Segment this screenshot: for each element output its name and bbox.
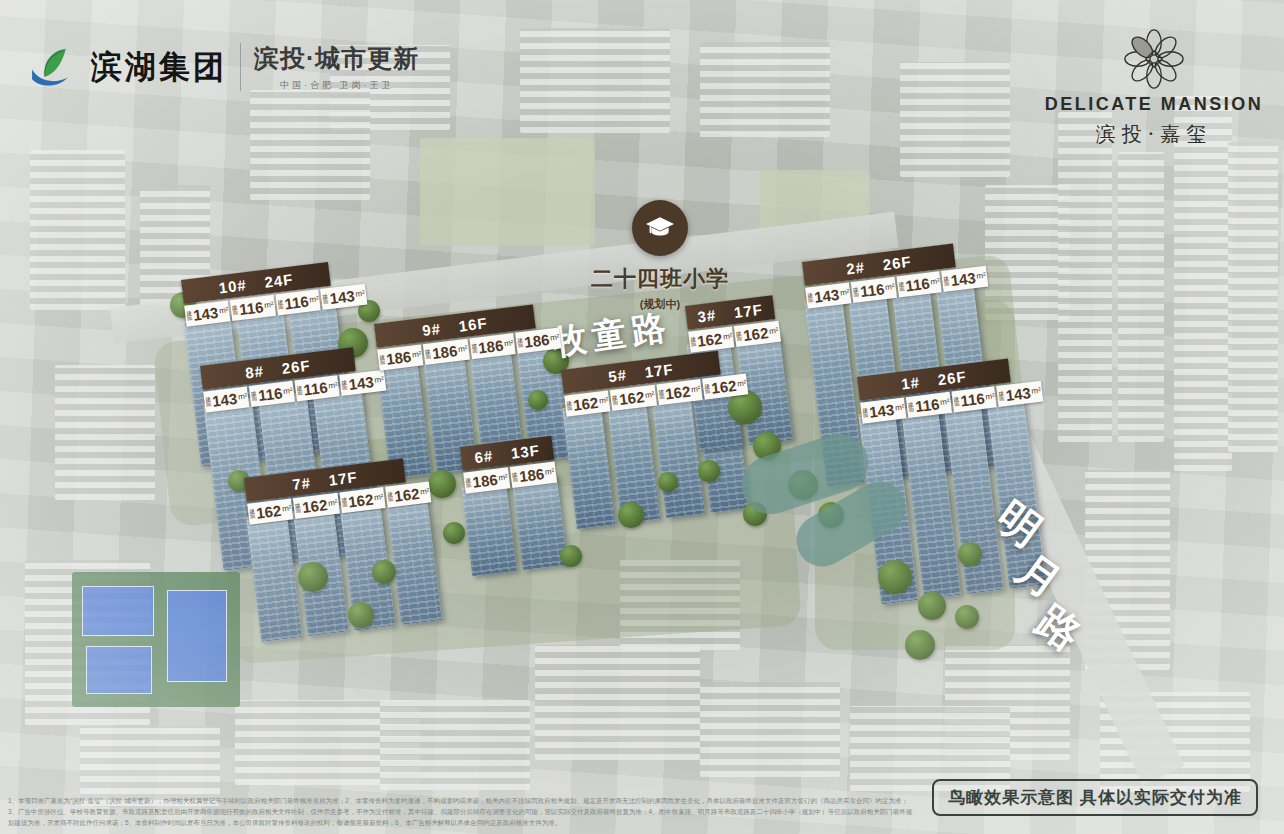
area-unit: m²	[691, 384, 701, 394]
area-value: 162	[618, 389, 645, 407]
brand-divider	[240, 43, 241, 91]
area-value: 143	[1005, 385, 1032, 403]
area-unit: m²	[219, 305, 229, 315]
building-floors: 26F	[281, 357, 312, 377]
area-unit: m²	[599, 395, 609, 405]
bg-tree	[443, 522, 465, 544]
bg-tree	[428, 470, 456, 498]
bg-pale	[700, 682, 840, 777]
building-floors: 26F	[882, 253, 913, 273]
project-name-en: DELICATE MANSION	[1045, 94, 1264, 115]
building-number: 2#	[845, 258, 866, 277]
area-unit: m²	[309, 294, 319, 304]
bg-pale	[55, 365, 155, 500]
building-floors: 17F	[733, 301, 764, 321]
area-prefix: 建面	[205, 397, 211, 407]
area-prefix: 建面	[853, 287, 859, 297]
tower-block	[386, 495, 442, 625]
area-value: 116	[257, 385, 283, 403]
area-prefix: 建面	[232, 305, 238, 315]
area-prefix: 建面	[387, 492, 393, 502]
area-unit: m²	[723, 331, 733, 341]
area-unit: m²	[412, 349, 422, 359]
bg-pale	[520, 28, 670, 133]
area-unit: m²	[355, 289, 365, 299]
bg-tree	[618, 502, 644, 528]
area-value: 162	[348, 491, 375, 509]
graduation-cap-badge	[632, 200, 688, 256]
area-prefix: 建面	[953, 397, 959, 407]
area-unit: m²	[458, 344, 468, 354]
area-value: 162	[572, 395, 599, 413]
area-unit: m²	[985, 391, 995, 401]
building-floors: 13F	[510, 441, 541, 461]
building-floors: 17F	[328, 468, 359, 488]
bg-court	[167, 590, 227, 682]
area-prefix: 建面	[517, 338, 523, 348]
area-prefix: 建面	[249, 509, 255, 519]
binhu-group-leaf-icon	[26, 44, 78, 90]
school-marker: 二十四班小学 (规划中)	[575, 200, 745, 312]
area-prefix: 建面	[999, 391, 1005, 401]
area-unit: m²	[374, 375, 384, 385]
area-prefix: 建面	[736, 331, 742, 341]
legal-disclaimer: 1、本项目推广案名为“滨投·嘉玺”（滨投·城市更新），办理相关权属登记等手续时以…	[8, 795, 913, 828]
area-value: 143	[329, 288, 356, 306]
area-value: 186	[385, 349, 412, 367]
area-prefix: 建面	[277, 300, 283, 310]
building-number: 10#	[218, 276, 248, 296]
building-number: 9#	[421, 320, 442, 339]
bg-tree	[348, 602, 374, 628]
area-prefix: 建面	[944, 276, 950, 286]
area-value: 116	[284, 294, 310, 312]
brand-bar-left: 滨湖集团 滨投·城市更新 中国·合肥 卫岗·王卫	[26, 42, 419, 92]
area-value: 162	[255, 503, 282, 521]
area-unit: m²	[504, 338, 514, 348]
bg-tree	[905, 630, 935, 660]
area-value: 143	[211, 391, 238, 409]
area-value: 143	[868, 402, 895, 420]
area-prefix: 建面	[466, 478, 472, 488]
area-unit: m²	[374, 492, 384, 502]
area-unit: m²	[737, 379, 747, 389]
area-unit: m²	[238, 391, 248, 401]
area-unit: m²	[545, 467, 555, 477]
area-value: 116	[914, 396, 940, 414]
bg-tree	[658, 472, 678, 492]
building-floors: 16F	[458, 314, 489, 334]
area-value: 143	[192, 305, 219, 323]
render-note-box: 鸟瞰效果示意图 具体以实际交付为准	[932, 779, 1258, 816]
area-prefix: 建面	[425, 349, 431, 359]
area-value: 186	[524, 332, 551, 350]
area-unit: m²	[930, 276, 940, 286]
area-prefix: 建面	[251, 391, 257, 401]
bg-tree	[298, 562, 328, 592]
area-unit: m²	[885, 282, 895, 292]
area-unit: m²	[895, 402, 905, 412]
bg-tree	[528, 390, 548, 410]
bg-tree	[958, 542, 982, 566]
area-prefix: 建面	[295, 503, 301, 513]
building-number: 5#	[607, 366, 628, 385]
project-name-cn: 滨投·嘉玺	[1096, 121, 1212, 148]
area-value: 186	[478, 337, 505, 355]
area-value: 186	[518, 466, 545, 484]
area-prefix: 建面	[186, 311, 192, 321]
graduation-cap-icon	[644, 212, 676, 244]
area-unit: m²	[498, 472, 508, 482]
area-prefix: 建面	[341, 498, 347, 508]
building-number: 3#	[697, 306, 718, 325]
area-prefix: 建面	[807, 293, 813, 303]
bg-tree	[698, 460, 720, 482]
area-value: 186	[472, 472, 499, 490]
brand-tagline: 中国·合肥 卫岗·王卫	[280, 79, 394, 92]
area-prefix: 建面	[342, 380, 348, 390]
area-value: 116	[960, 391, 986, 409]
area-value: 162	[665, 383, 692, 401]
area-value: 116	[238, 299, 264, 317]
unit-area-tag: 建面143m²	[997, 381, 1044, 407]
area-prefix: 建面	[566, 401, 572, 411]
bg-pale	[380, 700, 530, 790]
area-prefix: 建面	[862, 408, 868, 418]
area-prefix: 建面	[323, 294, 329, 304]
area-unit: m²	[976, 271, 986, 281]
area-unit: m²	[550, 333, 560, 343]
area-unit: m²	[283, 386, 293, 396]
area-value: 143	[348, 374, 375, 392]
bg-tree	[918, 592, 946, 620]
bg-tree	[955, 605, 979, 629]
bg-pale	[1058, 112, 1112, 442]
bg-pale	[1174, 96, 1232, 471]
area-value: 162	[711, 378, 738, 396]
area-value: 162	[394, 486, 421, 504]
area-prefix: 建面	[612, 395, 618, 405]
bg-courts	[72, 572, 240, 707]
area-value: 162	[301, 497, 328, 515]
bg-court	[86, 646, 152, 694]
sub-brand-name: 滨投·城市更新	[254, 42, 419, 75]
brand-bar-right: DELICATE MANSION 滨投·嘉玺	[1064, 28, 1244, 148]
bg-pale	[700, 42, 830, 137]
area-unit: m²	[1031, 386, 1041, 396]
delicate-mansion-flower-icon	[1123, 28, 1185, 90]
bg-pale	[535, 645, 700, 760]
area-prefix: 建面	[512, 472, 518, 482]
area-prefix: 建面	[690, 337, 696, 347]
area-unit: m²	[769, 326, 779, 336]
bg-field	[420, 138, 595, 246]
building-floors: 17F	[644, 360, 675, 380]
road-label-mingyue: 明月路	[992, 496, 1112, 676]
area-value: 186	[431, 343, 458, 361]
building-number: 8#	[244, 362, 265, 381]
area-value: 143	[950, 270, 977, 288]
bg-tree	[560, 545, 582, 567]
area-prefix: 建面	[658, 390, 664, 400]
area-unit: m²	[328, 380, 338, 390]
area-prefix: 建面	[908, 402, 914, 412]
area-prefix: 建面	[379, 355, 385, 365]
area-value: 116	[905, 276, 931, 294]
building-floors: 26F	[937, 368, 968, 388]
area-unit: m²	[420, 487, 430, 497]
area-unit: m²	[328, 498, 338, 508]
area-value: 143	[813, 287, 840, 305]
area-value: 162	[742, 325, 769, 343]
bg-pale	[1228, 142, 1278, 452]
school-title: 二十四班小学	[591, 264, 729, 294]
area-unit: m²	[264, 300, 274, 310]
building-floors: 24F	[263, 270, 294, 290]
building-number: 7#	[291, 474, 312, 493]
area-prefix: 建面	[704, 384, 710, 394]
bg-court	[82, 586, 154, 636]
bg-tree	[372, 560, 396, 584]
area-value: 162	[696, 331, 723, 349]
building-number: 6#	[474, 447, 495, 466]
area-unit: m²	[282, 503, 292, 513]
bg-pale	[250, 90, 370, 200]
aerial-render-poster: 滨湖集团 滨投·城市更新 中国·合肥 卫岗·王卫 DELICATE MANSIO…	[0, 0, 1284, 834]
building-number: 1#	[900, 373, 921, 392]
bg-pale	[1118, 152, 1164, 442]
bg-tree	[878, 560, 912, 594]
bg-pale	[30, 150, 125, 310]
area-unit: m²	[940, 397, 950, 407]
group-name: 滨湖集团	[91, 45, 227, 89]
area-value: 116	[859, 281, 885, 299]
area-unit: m²	[840, 287, 850, 297]
area-value: 116	[303, 380, 329, 398]
area-unit: m²	[645, 390, 655, 400]
bg-pale	[900, 62, 1010, 177]
area-prefix: 建面	[898, 282, 904, 292]
area-prefix: 建面	[471, 344, 477, 354]
area-prefix: 建面	[296, 386, 302, 396]
